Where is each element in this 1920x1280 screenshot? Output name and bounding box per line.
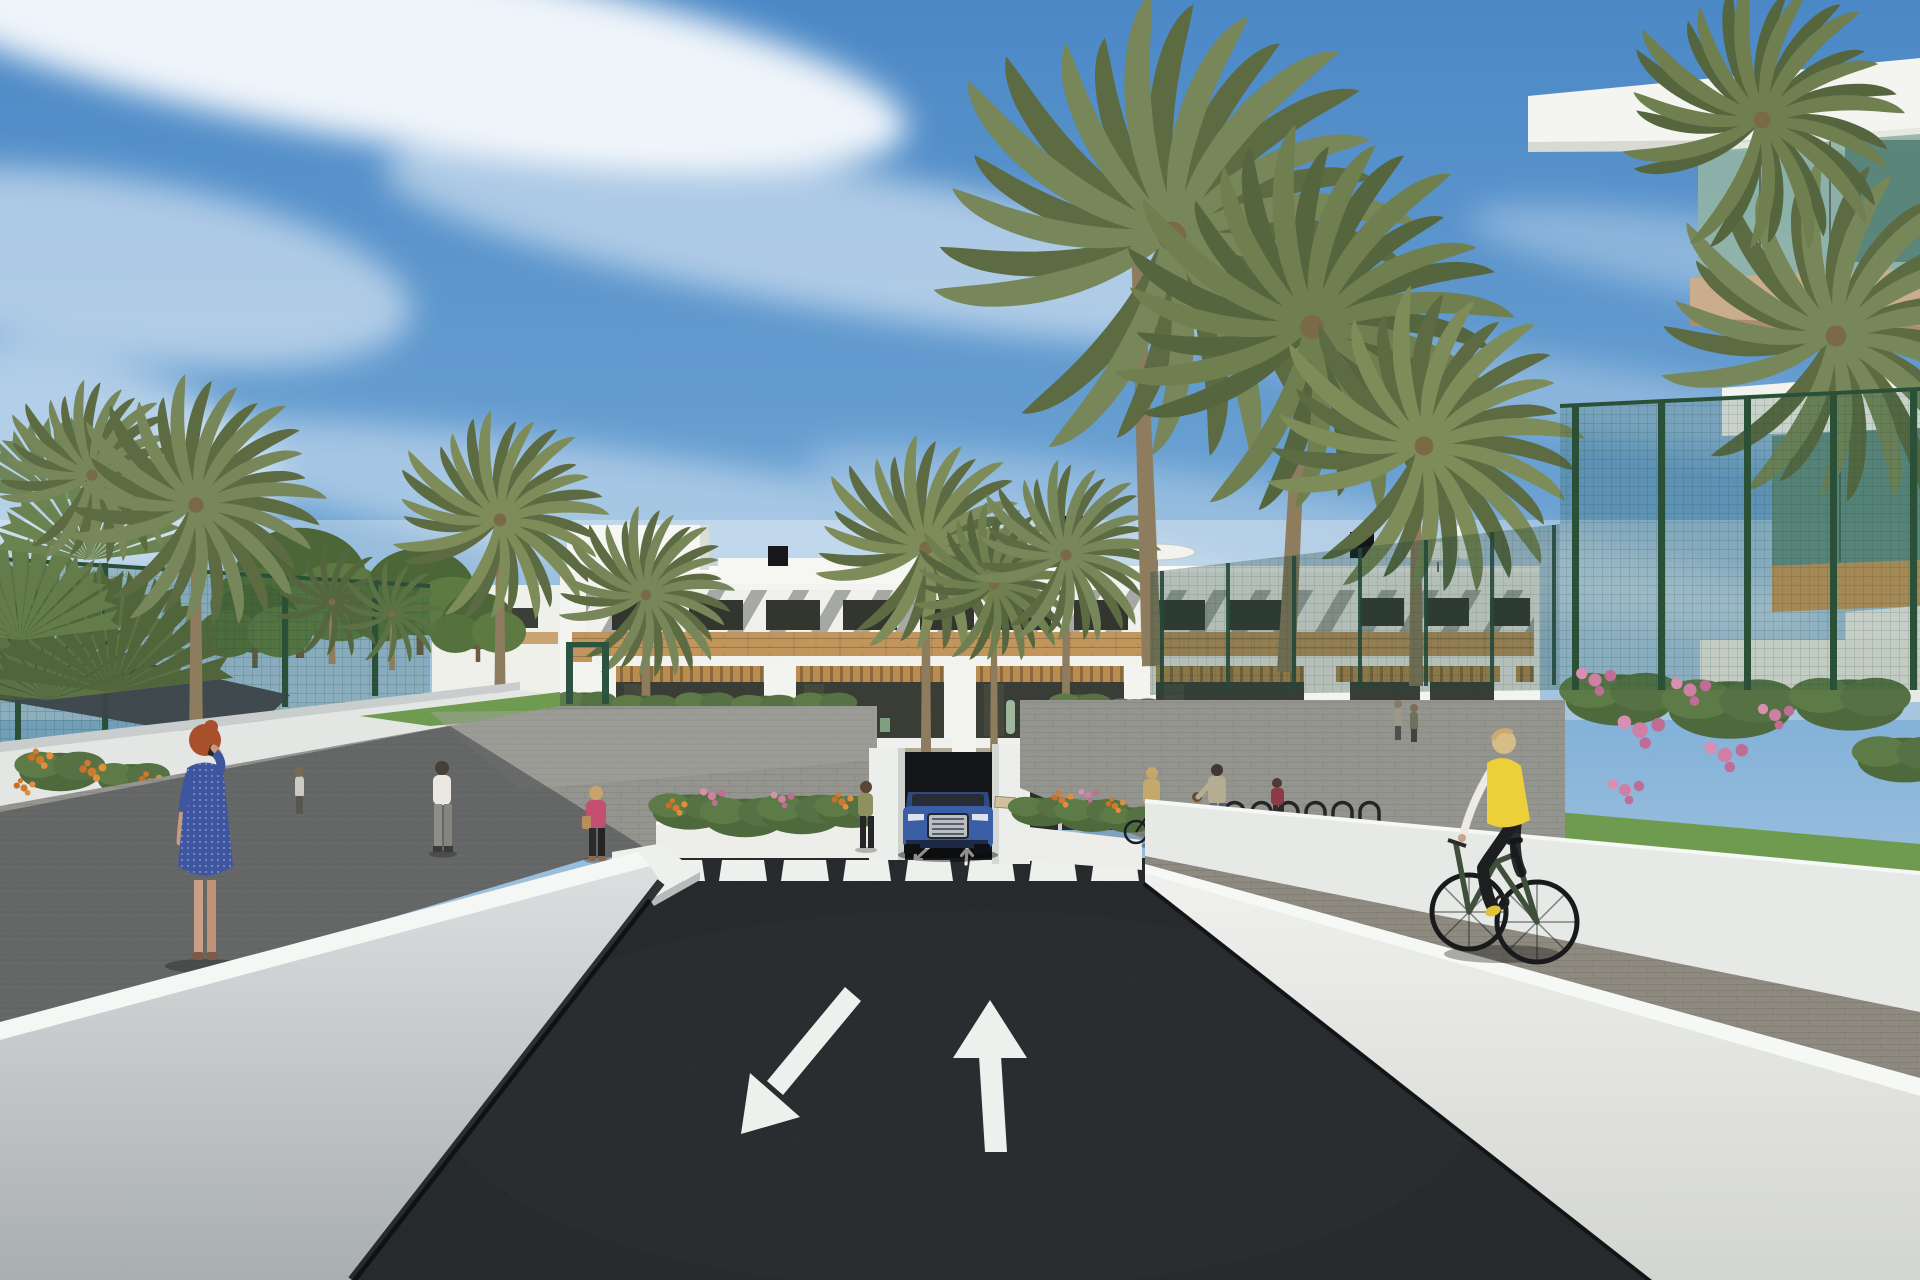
- car-suv: [898, 792, 998, 862]
- right-tall-fence: [1560, 388, 1920, 690]
- architectural-render: [0, 0, 1920, 1280]
- balcony-person: [1006, 700, 1015, 734]
- scene-canvas: [0, 0, 1920, 1280]
- roof-vent: [768, 546, 788, 566]
